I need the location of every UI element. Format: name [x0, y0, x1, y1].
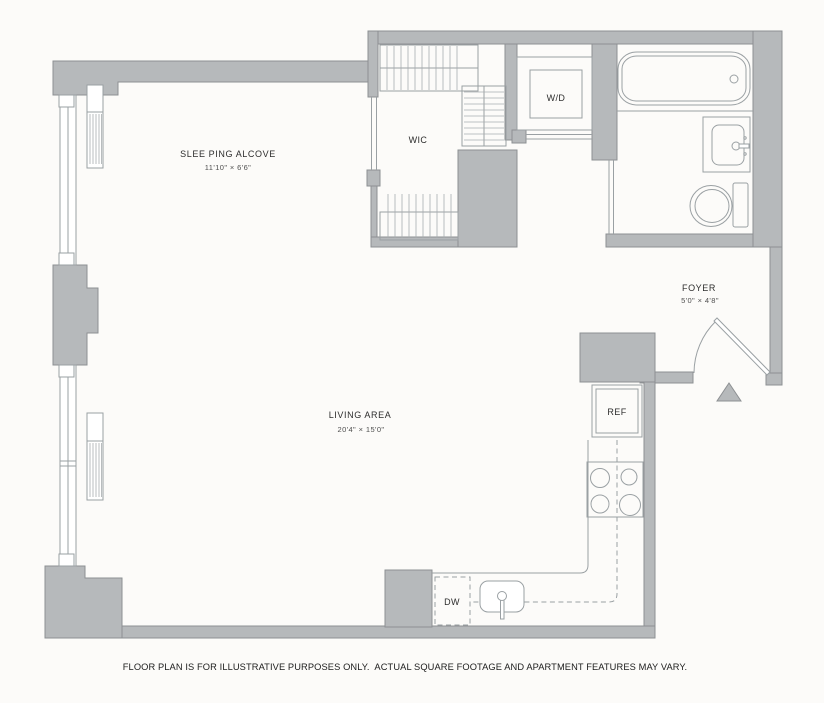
window-alcove — [59, 95, 76, 265]
floor-plan: SLEE PING ALCOVE 11'10" × 6'6" WIC W/D F… — [0, 0, 824, 703]
wall-bottom — [45, 626, 655, 638]
wall-top — [368, 31, 782, 44]
living-area-label: LIVING AREA — [329, 410, 392, 420]
toilet — [690, 183, 748, 227]
bathroom-sink — [703, 117, 750, 172]
closet-shelves — [462, 86, 506, 146]
wd-door-opening — [526, 135, 592, 140]
wall-wd-east — [592, 44, 617, 160]
entry-door — [694, 318, 770, 401]
door-leaf — [714, 318, 770, 375]
counter-edge — [432, 440, 588, 573]
bathroom-opening — [609, 160, 614, 234]
walls — [45, 31, 782, 638]
wic-label: WIC — [409, 135, 428, 145]
wall-wd-jamb — [512, 130, 526, 143]
closet-rod-bottom — [380, 194, 458, 240]
wall-block-foyer — [580, 333, 655, 382]
foyer-dims: 5'0" × 4'8" — [681, 296, 719, 305]
wall-right-lower — [770, 247, 782, 373]
living-area-dims: 20'4" × 15'0" — [338, 425, 385, 434]
sleeping-alcove-dims: 11'10" × 6'6" — [205, 163, 251, 172]
upper-cabinet-edge — [470, 440, 617, 602]
wall-kitchen-east — [644, 382, 655, 627]
sleeping-alcove-label: SLEE PING ALCOVE — [180, 149, 276, 159]
stove — [587, 462, 643, 517]
radiator-living — [87, 413, 103, 500]
wall-wd-west — [505, 44, 517, 140]
wic-opening — [372, 97, 377, 170]
entry-marker-icon — [717, 383, 741, 401]
radiator-alcove — [87, 85, 103, 168]
wall-pier-left — [53, 265, 98, 365]
wall-bottom-left — [45, 566, 122, 638]
wall-wic-west-jamb — [367, 170, 380, 186]
refrigerator-label: REF — [607, 407, 626, 417]
window-living — [59, 365, 76, 566]
dishwasher-label: DW — [444, 597, 460, 607]
foyer-label: FOYER — [682, 283, 716, 293]
wall-wic-west-upper — [368, 31, 378, 97]
wall-wic-west-lower — [371, 186, 377, 241]
wall-wic-south — [371, 237, 458, 247]
door-swing-arc — [694, 321, 716, 373]
wall-entry-jamb — [766, 373, 782, 385]
kitchen-sink — [480, 581, 524, 619]
disclaimer-text: FLOOR PLAN IS FOR ILLUSTRATIVE PURPOSES … — [123, 662, 687, 672]
wall-bath-south — [606, 234, 753, 247]
wall-right-upper — [753, 31, 782, 247]
wall-block-wic — [458, 150, 517, 247]
floor-plan-drawing: SLEE PING ALCOVE 11'10" × 6'6" WIC W/D F… — [0, 0, 824, 703]
washer-dryer-label: W/D — [547, 93, 566, 103]
wall-column-kitchen — [385, 570, 432, 627]
closet-rod-top — [380, 45, 478, 91]
bathtub — [617, 52, 753, 111]
kitchen — [432, 385, 643, 625]
